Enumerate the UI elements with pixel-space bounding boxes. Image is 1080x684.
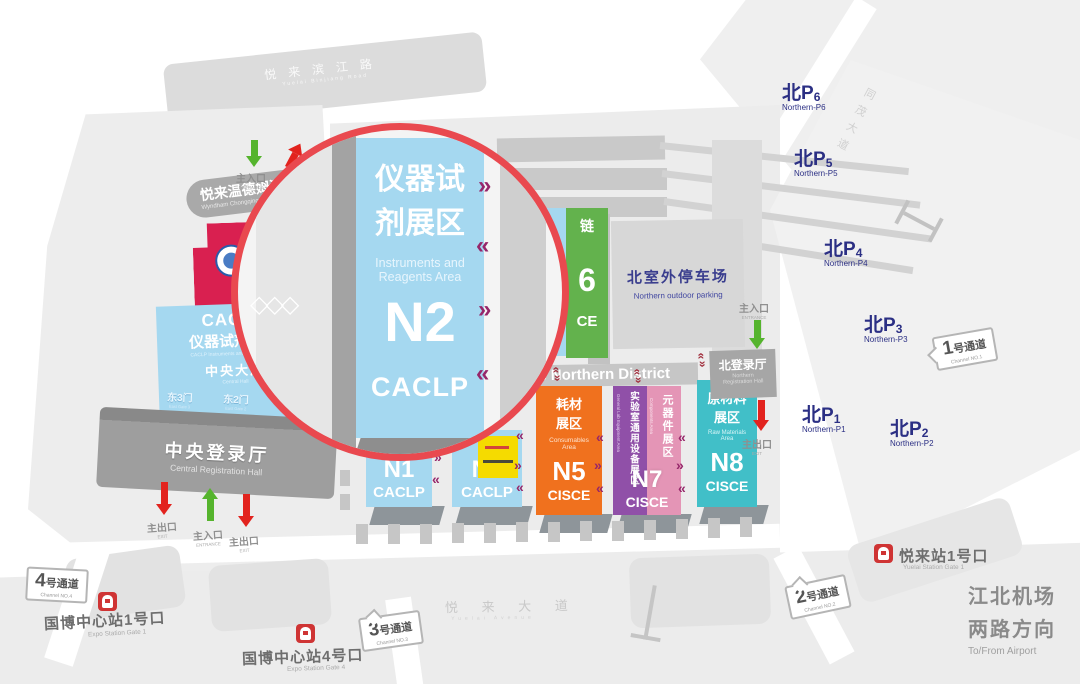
- gate-east-2-en: East Gate 2: [223, 406, 249, 412]
- exit-arrow-sw-2: [238, 494, 254, 527]
- magnifier-wall-dark: [332, 130, 356, 454]
- expo-venue-map: 悦来滨江路 Yuelai Binjiang Road 北室外停车场 Northe…: [0, 0, 1080, 684]
- pillar: [612, 521, 624, 541]
- parking-p1: 北P1Northern-P1: [802, 406, 846, 434]
- magnifier-n2-base: [355, 436, 503, 456]
- hall-n2-magnified: 仪器试 剂展区 Instruments and Reagents Area N2…: [356, 138, 484, 438]
- magnifier-chevron-1: »: [478, 174, 491, 198]
- pillar: [708, 518, 720, 538]
- hall-n8-expo: CISCE: [697, 478, 757, 494]
- exit-arrow-north: [753, 400, 769, 431]
- pillar: [484, 523, 496, 543]
- exit-label-north: 主出口EXIT: [742, 436, 772, 456]
- hall-n5-id: N5: [536, 456, 602, 487]
- hall-n8-zh2: 展区: [697, 407, 757, 426]
- northern-registration-zh: 北登录厅: [709, 355, 776, 374]
- channel-4-box: 4号通道 Channel NO.4: [25, 566, 88, 603]
- airport-en: To/From Airport: [968, 646, 1056, 657]
- parking-p6: 北P6Northern-P6: [782, 84, 826, 112]
- airport-zh2: 两路方向: [968, 613, 1056, 642]
- magnifier-lattice-left: ◇◇◇: [250, 290, 296, 319]
- road-h-bar: [903, 211, 935, 230]
- hall-n7: 实验室通用设备展区 General Lab Equipment Area 元器件…: [613, 386, 681, 515]
- pillar: [580, 521, 592, 541]
- hall-n2-id: N2: [356, 294, 484, 350]
- airport-zh1: 江北机场: [968, 580, 1056, 609]
- pillar: [548, 522, 560, 542]
- hall-n7-id: N7: [613, 466, 681, 494]
- northern-outdoor-parking: 北室外停车场 Northern outdoor parking: [611, 219, 745, 349]
- hall-n6-digit: 6: [566, 262, 608, 299]
- north-registration-chevrons: ««: [698, 352, 705, 368]
- exit-label-sw-1: 主出口EXIT: [146, 518, 177, 540]
- hall-n2-zh2: 剂展区: [356, 198, 484, 242]
- parking-p2: 北P2Northern-P2: [890, 420, 934, 448]
- pillar: [340, 494, 350, 510]
- northern-outdoor-parking-en: Northern outdoor parking: [612, 290, 744, 301]
- chevron-n3-c: «: [516, 480, 524, 494]
- parking-p5: 北P5Northern-P5: [794, 150, 838, 178]
- yellow-booth-mark-2: [483, 460, 513, 463]
- hall-n6-zh-frag: 链: [566, 216, 608, 236]
- hall-n7-right-zh: 元器件展区: [659, 394, 675, 459]
- magnifier-chevron-2: «: [476, 234, 489, 258]
- magnifier-lattice-right: ◇◇◇: [492, 422, 522, 442]
- parking-p4: 北P4Northern-P4: [824, 240, 868, 268]
- lawn-patch-2: [208, 558, 332, 632]
- hall-n7-left-en: General Lab Equipment Area: [616, 394, 621, 452]
- entrance-label-sw: 主入口ENTRANCE: [192, 526, 223, 548]
- hall-n5-expo: CISCE: [536, 487, 602, 503]
- gate-east-3: 东3门 East Gate 3: [167, 389, 193, 410]
- exit-label-sw-2: 主出口EXIT: [228, 532, 259, 554]
- gate-east-3-zh: 东3门: [167, 389, 193, 405]
- magnifier-circle: ◇◇◇ 仪器试 剂展区 Instruments and Reagents Are…: [231, 123, 569, 461]
- hall-n7-ids: N7 CISCE: [613, 466, 681, 510]
- pillar: [676, 519, 688, 539]
- pillar: [740, 517, 752, 537]
- hall-n2-expo: CACLP: [356, 372, 484, 403]
- chevron-n5-n7-a: «: [596, 430, 604, 444]
- chevron-n3-b: »: [514, 458, 522, 472]
- chevron-n5-n7-c: «: [596, 481, 604, 495]
- magnifier-chevron-4: «: [476, 362, 489, 386]
- ground-right: [770, 60, 1080, 560]
- hall-n2-en1: Instruments and: [356, 256, 484, 270]
- hall-n7-expo: CISCE: [613, 494, 681, 510]
- metro-icon-expo-gate4: [296, 624, 315, 643]
- banner-chevrons-2: ««: [634, 368, 641, 384]
- parking-p3: 北P3Northern-P3: [864, 316, 908, 344]
- pillar: [388, 524, 400, 544]
- airport-direction: 江北机场 两路方向 To/From Airport: [968, 580, 1056, 657]
- pillar: [356, 524, 368, 544]
- yuelai-station-gate1-zh: 悦来站1号口: [899, 545, 988, 566]
- gate-east-2: 东2门 East Gate 2: [223, 391, 249, 412]
- chevron-n5-n7-b: »: [594, 458, 602, 472]
- street-yuelai-avenue: 悦 来 大 道 Yuelai Avenue: [445, 595, 578, 622]
- banner-chevrons-1: ««: [553, 366, 560, 382]
- pillar: [644, 520, 656, 540]
- hall-n2-zh1: 仪器试: [356, 154, 484, 198]
- gate-east-3-en: East Gate 3: [167, 404, 193, 410]
- magnifier-chevron-3: »: [478, 298, 491, 322]
- hall-n7-right-en: Components Area: [649, 398, 654, 434]
- northern-outdoor-parking-zh: 北室外停车场: [612, 265, 744, 288]
- hall-n1-base: [369, 506, 444, 525]
- pillar: [420, 524, 432, 544]
- yuelai-station-gate1-en: Yuelai Station Gate 1: [903, 564, 964, 571]
- exit-arrow-sw-1: [156, 482, 172, 515]
- northern-registration-en2: Registration Hall: [710, 378, 776, 386]
- pillar: [516, 522, 528, 542]
- chevron-n7-n8-b: »: [676, 458, 684, 472]
- entrance-label-north: 主入口ENTRANCE: [739, 300, 769, 320]
- hall-n6-expo-frag: CE: [566, 313, 608, 330]
- gate-east-2-zh: 东2门: [223, 391, 249, 407]
- entrance-arrow-sw: [202, 488, 218, 521]
- northern-registration-hall: 北登录厅 Northern Registration Hall: [709, 349, 777, 399]
- metro-icon-expo-gate1: [98, 592, 117, 611]
- hall-n3-expo: CACLP: [452, 484, 522, 501]
- hall-n6: 链 6 CE: [566, 208, 608, 358]
- hall-n2-en2: Reagents Area: [356, 270, 484, 284]
- street-yuelai-avenue-zh: 悦 来 大 道: [445, 595, 578, 616]
- entrance-arrow-north: [749, 320, 765, 349]
- metro-icon-yuelai-gate1: [874, 544, 893, 563]
- pillar: [340, 470, 350, 486]
- chevron-n1-n3-b: «: [432, 472, 440, 486]
- hall-n1-expo: CACLP: [366, 484, 432, 501]
- magnifier-pillar: [500, 130, 546, 454]
- chevron-n7-n8-a: «: [678, 430, 686, 444]
- chevron-n7-n8-c: «: [678, 481, 686, 495]
- pillar: [452, 523, 464, 543]
